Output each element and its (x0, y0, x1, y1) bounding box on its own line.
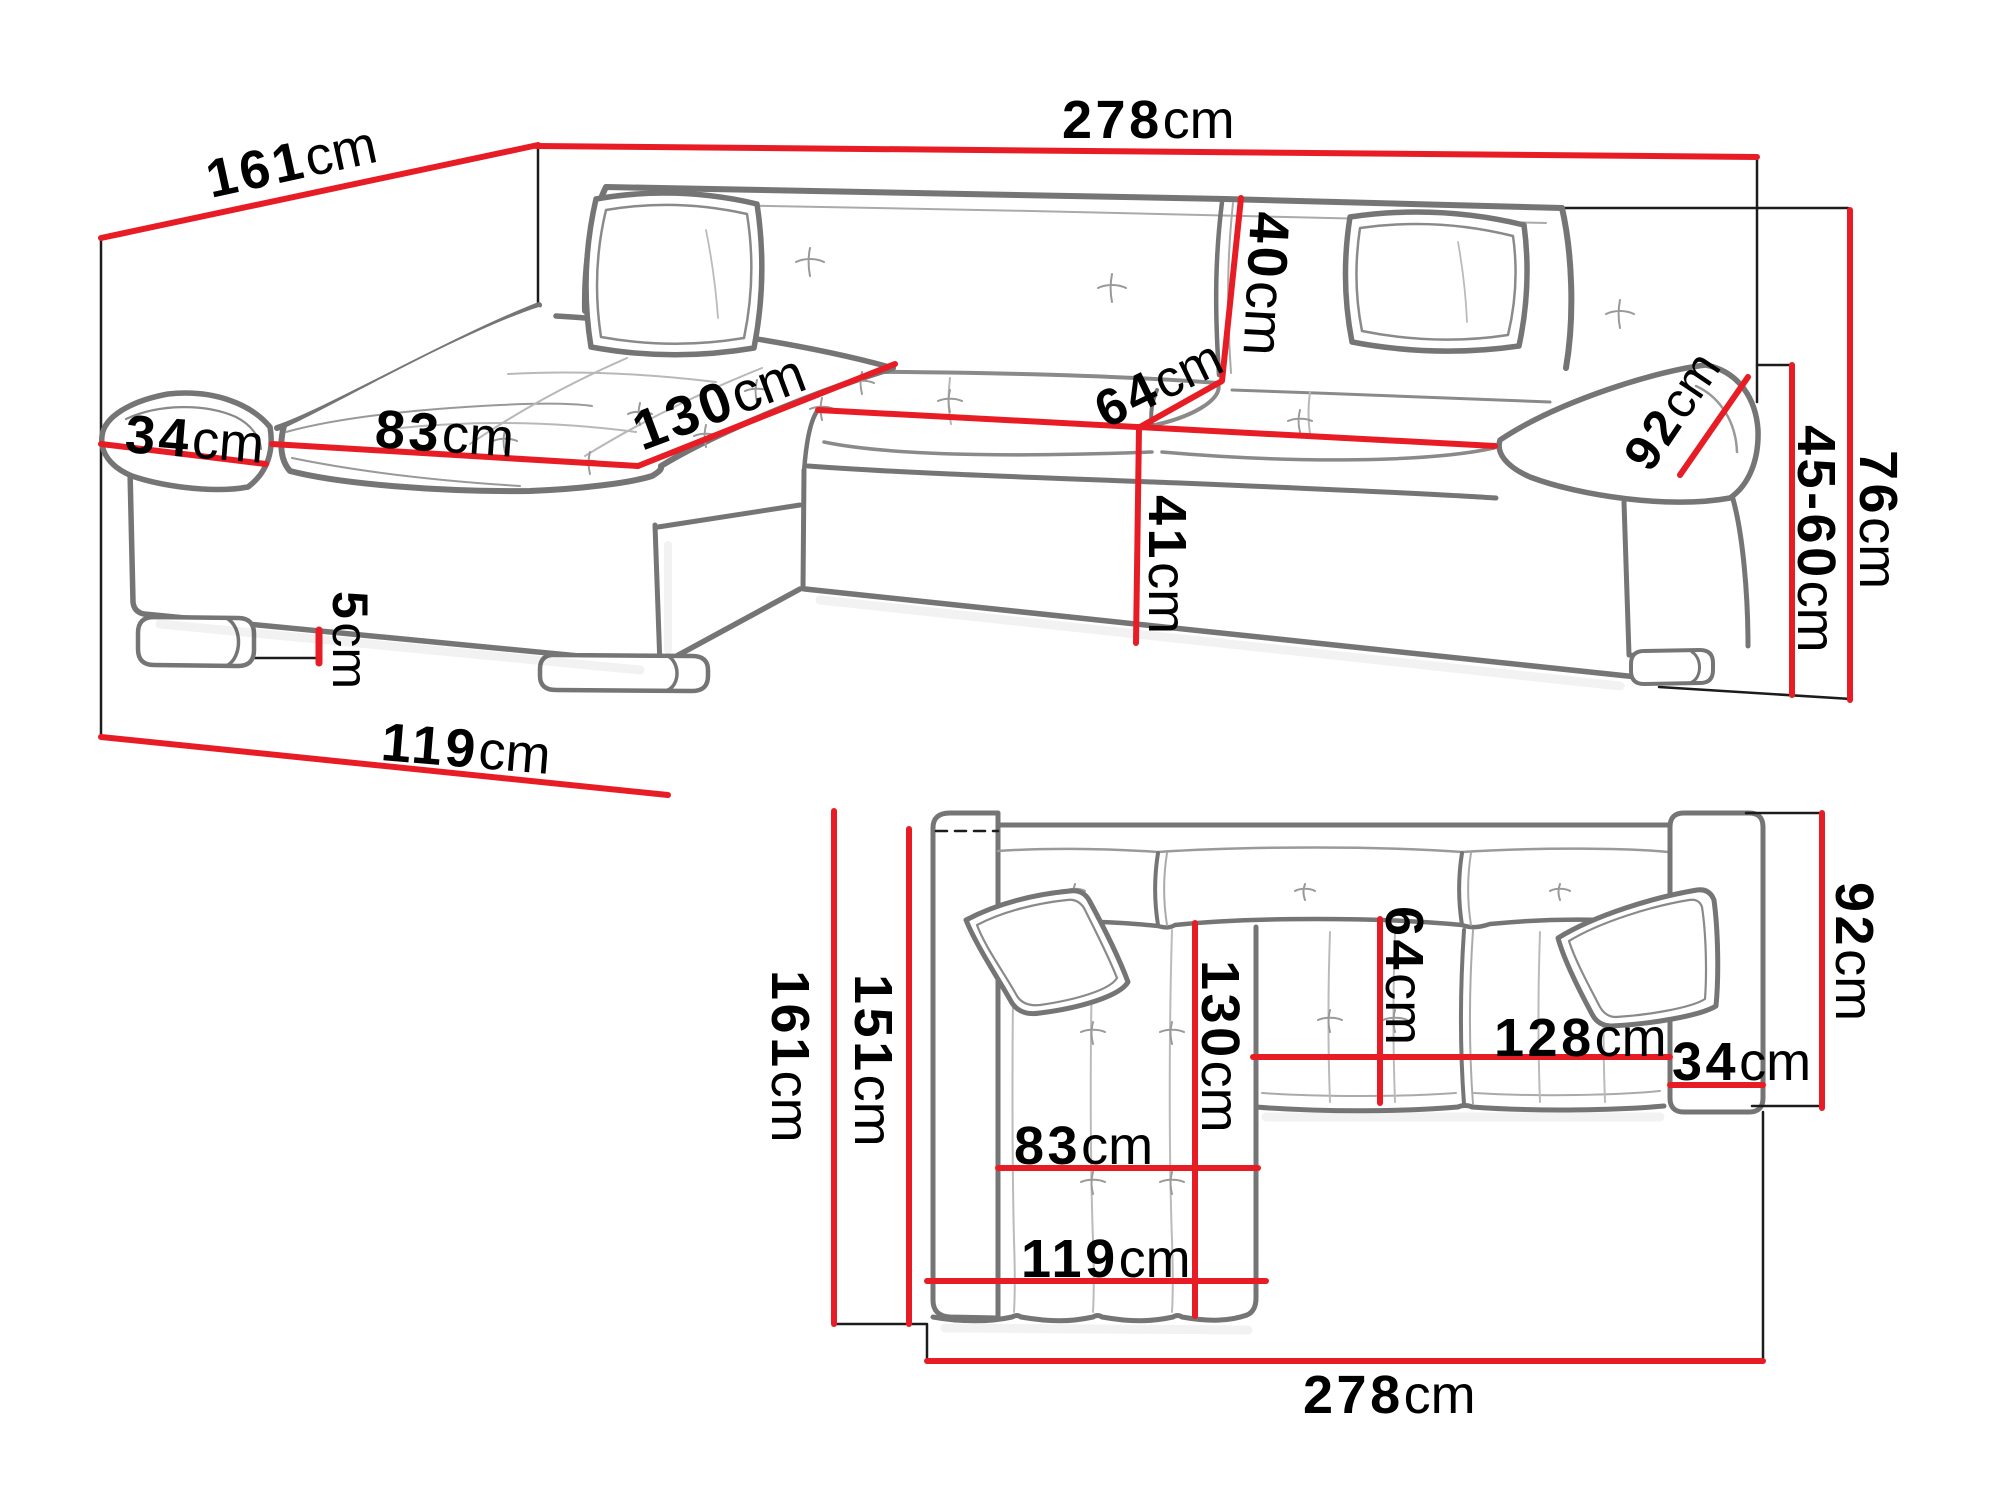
svg-text:151cm: 151cm (843, 974, 903, 1147)
svg-text:128cm: 128cm (1494, 1008, 1667, 1068)
svg-text:161cm: 161cm (760, 970, 820, 1143)
svg-text:130cm: 130cm (1190, 960, 1250, 1133)
svg-text:40cm: 40cm (1231, 210, 1301, 357)
svg-text:83cm: 83cm (373, 399, 516, 469)
svg-text:45-60cm: 45-60cm (1786, 425, 1846, 653)
svg-text:34cm: 34cm (1672, 1032, 1811, 1092)
svg-text:5cm: 5cm (322, 591, 378, 689)
svg-text:34cm: 34cm (123, 404, 266, 475)
svg-text:41cm: 41cm (1137, 495, 1197, 634)
svg-text:64cm: 64cm (1374, 906, 1434, 1045)
svg-text:83cm: 83cm (1014, 1116, 1153, 1176)
svg-text:76cm: 76cm (1848, 450, 1908, 589)
svg-text:278cm: 278cm (1303, 1365, 1476, 1425)
svg-text:92cm: 92cm (1824, 882, 1884, 1021)
svg-text:119cm: 119cm (1021, 1229, 1191, 1289)
svg-text:278cm: 278cm (1062, 90, 1235, 150)
